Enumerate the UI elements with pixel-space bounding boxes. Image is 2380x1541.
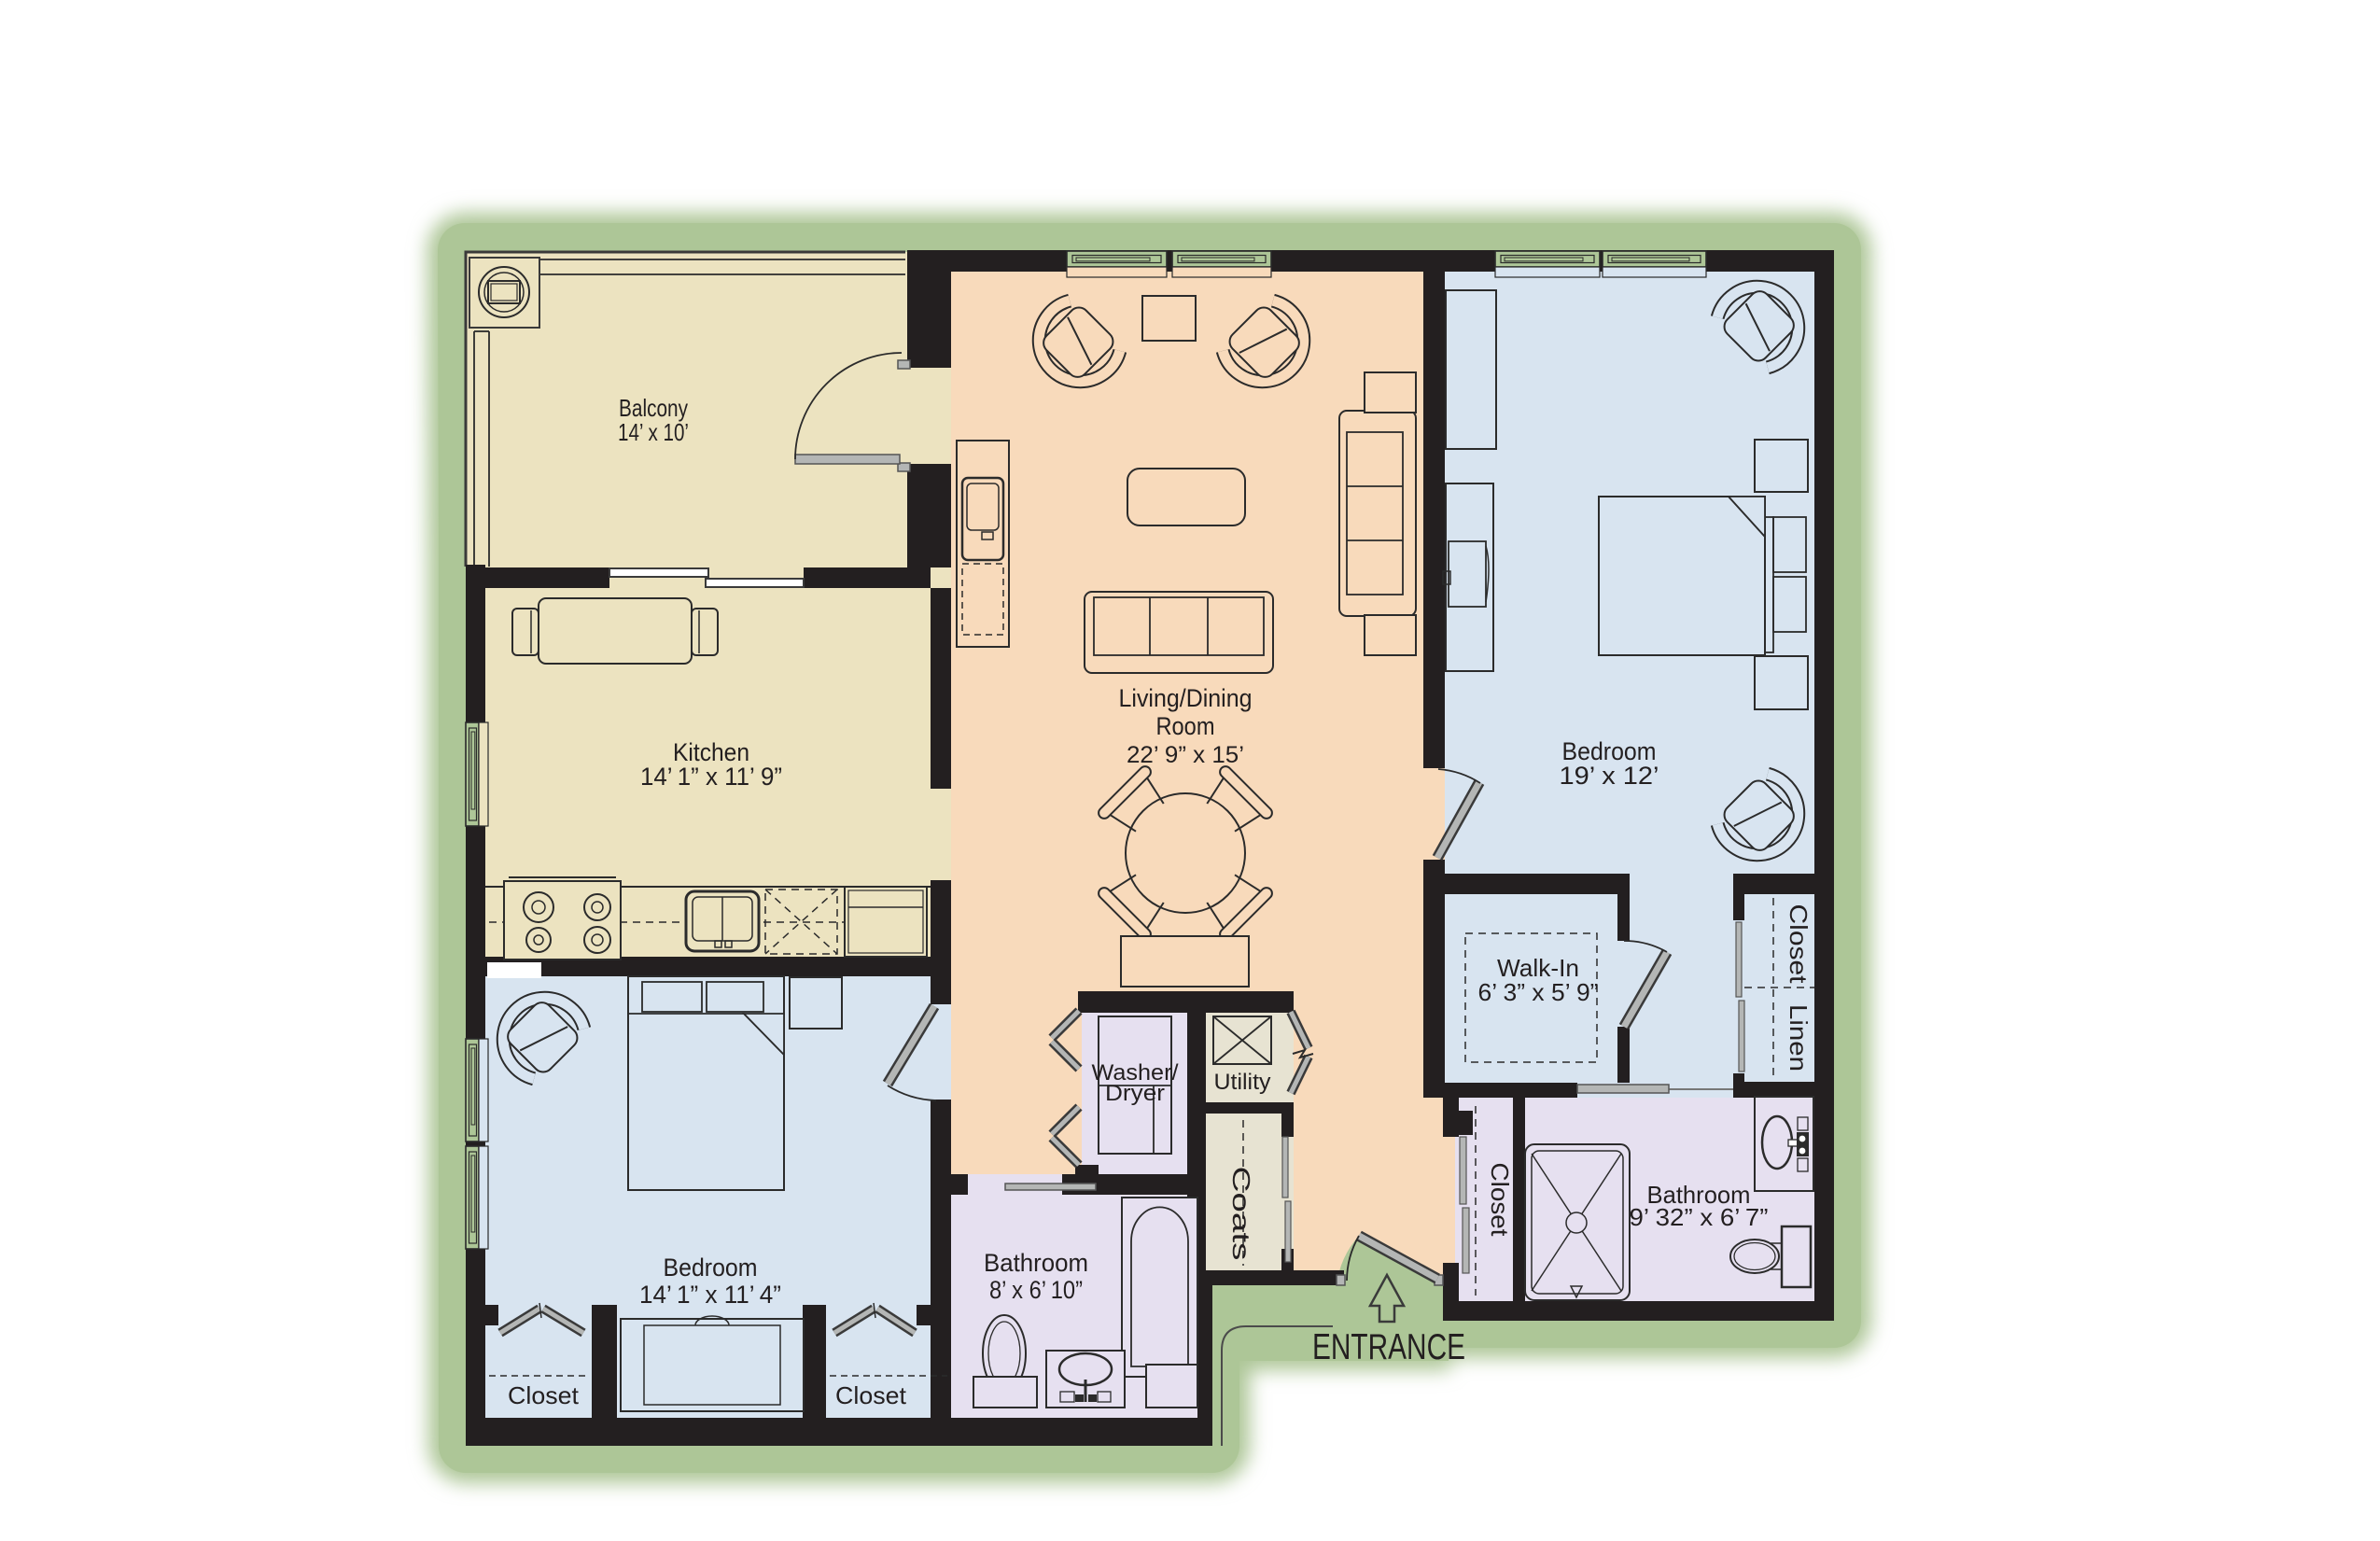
svg-text:19’ x 12’: 19’ x 12’ — [1560, 762, 1659, 790]
svg-text:ENTRANCE: ENTRANCE — [1312, 1327, 1465, 1367]
svg-text:Coats: Coats — [1227, 1167, 1255, 1261]
svg-text:Bedroom: Bedroom — [664, 1254, 758, 1282]
svg-text:Utility: Utility — [1214, 1070, 1271, 1095]
svg-text:Room: Room — [1156, 712, 1215, 740]
svg-text:Bathroom: Bathroom — [984, 1249, 1088, 1277]
svg-text:6’ 3” x 5’ 9”: 6’ 3” x 5’ 9” — [1478, 978, 1599, 1006]
svg-text:Closet: Closet — [835, 1381, 907, 1409]
svg-text:Closet: Closet — [508, 1381, 580, 1409]
svg-text:Living/Dining: Living/Dining — [1119, 684, 1253, 712]
svg-text:14’ x 10’: 14’ x 10’ — [618, 418, 689, 446]
svg-text:Dryer: Dryer — [1105, 1081, 1165, 1106]
svg-text:8’ x 6’ 10”: 8’ x 6’ 10” — [989, 1276, 1083, 1304]
svg-text:Closet: Closet — [1486, 1163, 1514, 1238]
svg-text:Linen: Linen — [1785, 1004, 1813, 1072]
svg-text:9’ 32” x 6’ 7”: 9’ 32” x 6’ 7” — [1630, 1203, 1769, 1231]
svg-text:22’ 9” x 15’: 22’ 9” x 15’ — [1127, 742, 1244, 768]
svg-text:14’ 1” x 11’ 9”: 14’ 1” x 11’ 9” — [640, 763, 782, 791]
svg-text:14’ 1” x 11’ 4”: 14’ 1” x 11’ 4” — [639, 1281, 781, 1309]
svg-text:Closet: Closet — [1785, 904, 1813, 985]
